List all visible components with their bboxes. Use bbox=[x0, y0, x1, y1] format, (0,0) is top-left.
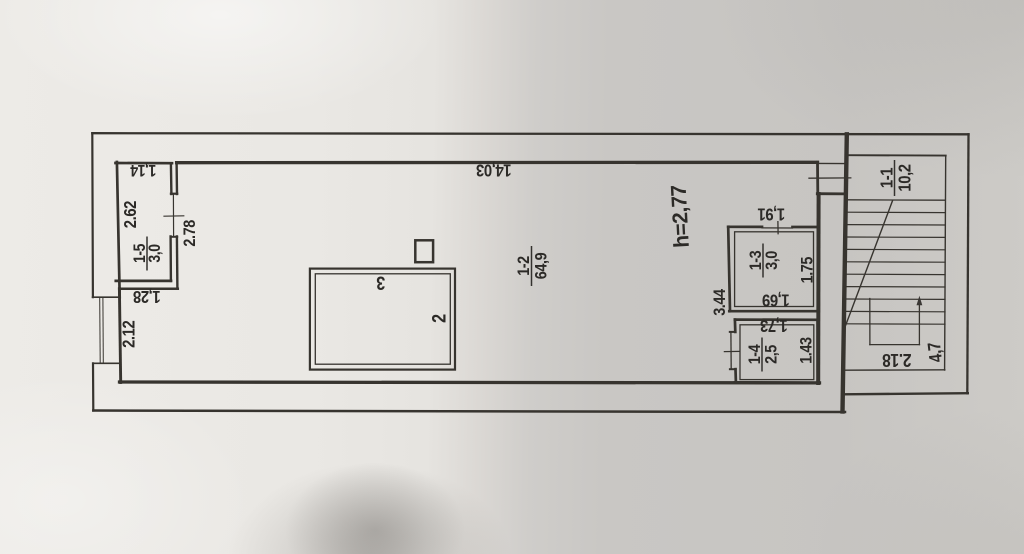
svg-text:4,7: 4,7 bbox=[924, 341, 947, 363]
svg-text:3,0: 3,0 bbox=[763, 250, 781, 269]
svg-text:3,0: 3,0 bbox=[146, 244, 164, 262]
svg-text:1,73: 1,73 bbox=[760, 316, 788, 335]
svg-text:2.78: 2.78 bbox=[181, 220, 199, 247]
svg-text:1-1: 1-1 bbox=[877, 167, 896, 188]
svg-text:10,2: 10,2 bbox=[895, 164, 914, 192]
svg-text:64,9: 64,9 bbox=[533, 252, 551, 279]
svg-text:1,14: 1,14 bbox=[130, 161, 156, 179]
svg-text:14,03: 14,03 bbox=[476, 160, 511, 179]
svg-text:2: 2 bbox=[428, 314, 450, 323]
svg-text:2.12: 2.12 bbox=[120, 320, 139, 348]
svg-text:3: 3 bbox=[376, 272, 385, 294]
svg-text:1,91: 1,91 bbox=[757, 204, 785, 223]
svg-text:1,69: 1,69 bbox=[762, 290, 790, 309]
svg-text:1,28: 1,28 bbox=[133, 287, 161, 306]
svg-text:2.18: 2.18 bbox=[882, 350, 912, 372]
svg-text:1.75: 1.75 bbox=[799, 256, 817, 283]
svg-text:2.62: 2.62 bbox=[121, 201, 140, 229]
svg-text:1.43: 1.43 bbox=[797, 337, 815, 364]
svg-text:3.44: 3.44 bbox=[711, 289, 729, 316]
svg-text:h=2,77: h=2,77 bbox=[667, 185, 694, 249]
svg-text:2,5: 2,5 bbox=[763, 344, 781, 363]
svg-text:1-2: 1-2 bbox=[515, 256, 533, 276]
